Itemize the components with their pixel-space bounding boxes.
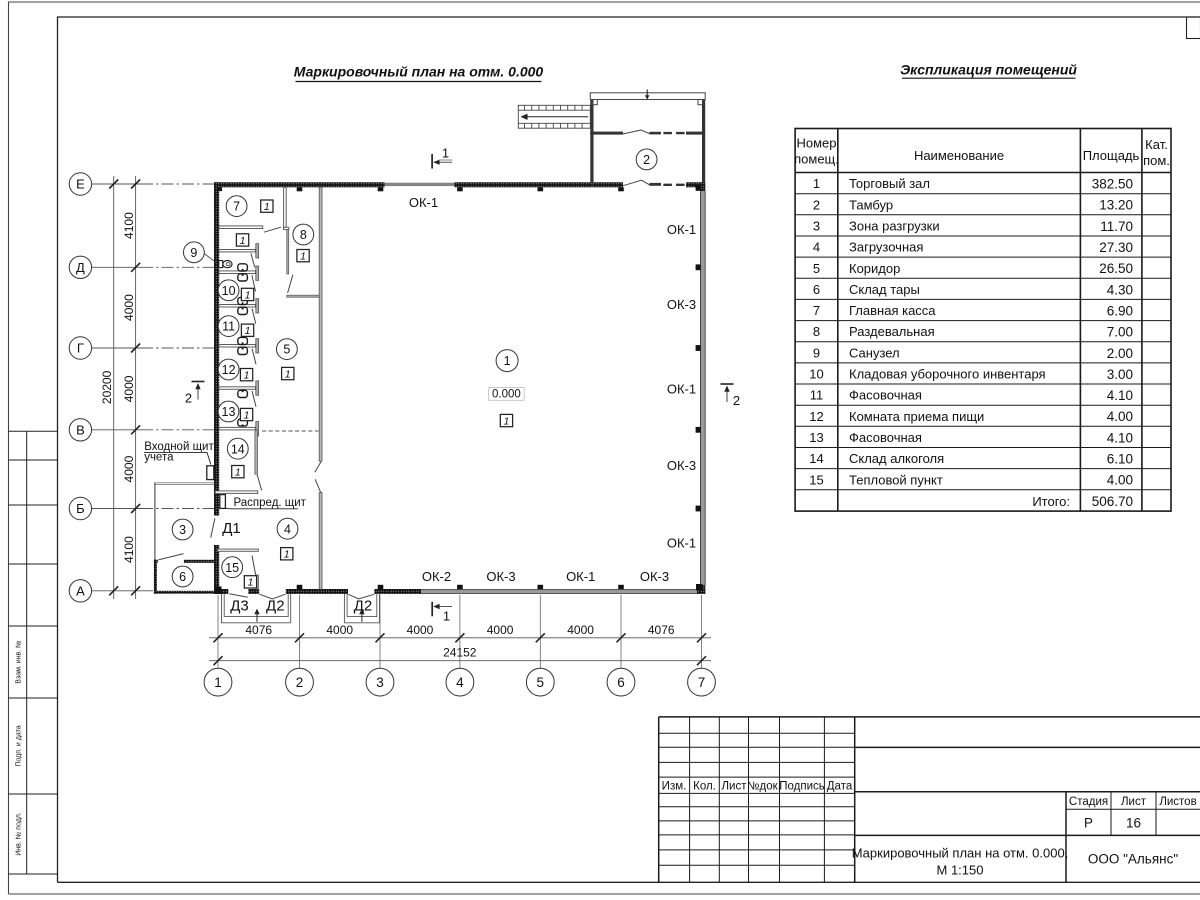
svg-text:Д2: Д2 <box>354 598 373 615</box>
svg-text:1: 1 <box>300 251 306 263</box>
svg-text:ОК-1: ОК-1 <box>667 222 696 237</box>
svg-text:Е: Е <box>76 177 85 192</box>
svg-text:1: 1 <box>503 415 509 427</box>
svg-text:Комната приема пищи: Комната приема пищи <box>849 409 984 424</box>
svg-text:3.00: 3.00 <box>1107 367 1133 382</box>
svg-text:Итого:: Итого: <box>1032 494 1070 509</box>
svg-text:4.00: 4.00 <box>1107 409 1133 424</box>
svg-text:10: 10 <box>222 284 236 298</box>
svg-text:14: 14 <box>809 451 823 466</box>
svg-text:ОК-3: ОК-3 <box>667 297 696 312</box>
svg-text:Р: Р <box>1084 816 1093 831</box>
svg-text:Тамбур: Тамбур <box>849 197 893 212</box>
svg-text:4000: 4000 <box>122 294 136 321</box>
svg-text:Инв. № подл.: Инв. № подл. <box>16 812 23 856</box>
svg-text:11: 11 <box>810 388 824 403</box>
svg-text:Загрузочная: Загрузочная <box>849 240 923 255</box>
svg-text:ОК-1: ОК-1 <box>667 382 696 397</box>
svg-text:Главная касса: Главная касса <box>849 303 936 318</box>
svg-text:2: 2 <box>813 197 820 212</box>
svg-text:В: В <box>76 422 85 437</box>
svg-text:12: 12 <box>809 409 823 424</box>
svg-text:Маркировочный план на отм. 0.0: Маркировочный план на отм. 0.000, <box>852 846 1069 861</box>
svg-text:11.70: 11.70 <box>1100 219 1133 234</box>
svg-text:Кат.: Кат. <box>1145 137 1168 152</box>
svg-text:2: 2 <box>185 391 192 406</box>
svg-text:20200: 20200 <box>100 370 114 404</box>
svg-text:27.30: 27.30 <box>1099 240 1133 255</box>
svg-text:4: 4 <box>456 675 464 690</box>
svg-text:Площадь: Площадь <box>1083 148 1140 163</box>
svg-text:7: 7 <box>813 303 820 318</box>
svg-text:Взам. инв. №: Взам. инв. № <box>16 640 23 683</box>
svg-text:1: 1 <box>284 549 290 561</box>
svg-text:Фасовочная: Фасовочная <box>849 430 922 445</box>
svg-text:16: 16 <box>1126 816 1141 831</box>
svg-text:Экспликация помещений: Экспликация помещений <box>900 62 1077 78</box>
svg-text:9: 9 <box>813 345 820 360</box>
svg-text:1: 1 <box>245 325 251 337</box>
svg-text:Стадия: Стадия <box>1069 796 1108 808</box>
svg-text:Подпись: Подпись <box>779 781 825 793</box>
svg-text:2: 2 <box>733 393 740 408</box>
svg-text:1: 1 <box>244 409 250 421</box>
svg-text:14: 14 <box>231 442 245 456</box>
svg-text:506.70: 506.70 <box>1092 494 1133 509</box>
svg-text:Торговый зал: Торговый зал <box>849 176 930 191</box>
svg-text:2: 2 <box>296 675 304 690</box>
svg-text:Коридор: Коридор <box>849 261 900 276</box>
svg-text:8: 8 <box>813 324 820 339</box>
svg-text:Тепловой пункт: Тепловой пункт <box>849 472 943 487</box>
svg-text:1: 1 <box>285 368 291 380</box>
svg-text:7: 7 <box>233 200 240 214</box>
svg-text:4100: 4100 <box>122 212 136 239</box>
svg-text:Кол.: Кол. <box>693 781 716 793</box>
svg-text:26.50: 26.50 <box>1099 261 1133 276</box>
svg-text:4.10: 4.10 <box>1107 430 1133 445</box>
svg-text:1: 1 <box>442 145 449 160</box>
svg-text:15: 15 <box>225 561 239 575</box>
svg-text:13: 13 <box>809 430 823 445</box>
svg-text:7: 7 <box>698 675 706 690</box>
svg-text:13: 13 <box>222 405 236 419</box>
svg-text:Кладовая уборочного инвентаря: Кладовая уборочного инвентаря <box>849 367 1046 382</box>
svg-text:4076: 4076 <box>245 623 272 637</box>
svg-text:1: 1 <box>443 609 450 624</box>
svg-text:Г: Г <box>77 341 84 356</box>
svg-text:ОК-1: ОК-1 <box>409 195 438 210</box>
svg-text:4076: 4076 <box>648 623 675 637</box>
svg-text:пом.: пом. <box>1143 153 1170 168</box>
svg-text:2.00: 2.00 <box>1107 346 1133 361</box>
svg-text:Д3: Д3 <box>230 598 249 615</box>
svg-text:4: 4 <box>813 240 820 255</box>
svg-text:1: 1 <box>264 201 270 213</box>
svg-text:Дата: Дата <box>827 781 853 793</box>
svg-text:6: 6 <box>179 570 186 584</box>
svg-text:Склад алкоголя: Склад алкоголя <box>849 451 944 466</box>
svg-text:ОК-2: ОК-2 <box>422 569 451 584</box>
svg-text:6: 6 <box>617 675 625 690</box>
svg-text:1: 1 <box>245 289 251 301</box>
svg-text:Фасовочная: Фасовочная <box>849 388 922 403</box>
svg-text:6.10: 6.10 <box>1107 452 1133 467</box>
svg-text:ООО "Альянс": ООО "Альянс" <box>1088 852 1178 867</box>
svg-text:ОК-1: ОК-1 <box>566 569 595 584</box>
svg-text:11: 11 <box>222 320 235 334</box>
svg-text:1: 1 <box>214 675 222 690</box>
svg-text:3: 3 <box>179 523 186 537</box>
svg-text:1: 1 <box>240 235 246 247</box>
svg-text:6: 6 <box>813 282 820 297</box>
svg-text:5: 5 <box>537 675 545 690</box>
svg-text:9: 9 <box>190 246 197 260</box>
svg-text:ОК-3: ОК-3 <box>640 569 669 584</box>
svg-text:Наименование: Наименование <box>914 148 1004 163</box>
svg-text:Раздевальная: Раздевальная <box>849 324 935 339</box>
svg-text:Д: Д <box>76 260 85 275</box>
svg-text:4000: 4000 <box>122 375 136 402</box>
svg-text:4: 4 <box>284 522 291 536</box>
svg-text:4.30: 4.30 <box>1107 282 1133 297</box>
svg-text:Д1: Д1 <box>222 520 241 537</box>
svg-text:№док.: №док. <box>747 781 781 793</box>
svg-text:4.00: 4.00 <box>1107 473 1133 488</box>
svg-text:10: 10 <box>809 367 823 382</box>
svg-text:Склад тары: Склад тары <box>849 282 920 297</box>
svg-text:Д2: Д2 <box>266 598 285 615</box>
svg-text:8: 8 <box>300 228 307 242</box>
svg-text:0.000: 0.000 <box>492 389 521 401</box>
svg-text:1: 1 <box>247 577 253 589</box>
svg-text:ОК-1: ОК-1 <box>667 536 696 551</box>
svg-text:24152: 24152 <box>443 646 477 660</box>
svg-text:4000: 4000 <box>326 623 353 637</box>
svg-text:3: 3 <box>813 219 820 234</box>
svg-text:М 1:150: М 1:150 <box>937 863 984 878</box>
svg-text:помещ.: помещ. <box>794 152 839 167</box>
svg-text:1: 1 <box>235 467 241 479</box>
svg-text:1: 1 <box>504 354 511 368</box>
svg-text:Номер: Номер <box>796 136 836 151</box>
svg-text:4000: 4000 <box>567 623 594 637</box>
svg-text:12: 12 <box>222 363 236 377</box>
svg-text:382.50: 382.50 <box>1092 177 1133 192</box>
svg-text:Б: Б <box>76 501 85 516</box>
svg-text:ОК-3: ОК-3 <box>486 569 515 584</box>
svg-text:4000: 4000 <box>407 623 434 637</box>
svg-text:учета: учета <box>144 451 174 463</box>
svg-text:6.90: 6.90 <box>1107 304 1133 319</box>
svg-text:1: 1 <box>813 176 820 191</box>
svg-text:5: 5 <box>813 261 820 276</box>
svg-text:А: А <box>76 583 85 598</box>
svg-text:5: 5 <box>283 343 290 357</box>
svg-text:4100: 4100 <box>122 536 136 563</box>
svg-text:Листов: Листов <box>1159 796 1196 808</box>
svg-text:13.20: 13.20 <box>1099 198 1133 213</box>
svg-text:1: 1 <box>244 370 250 382</box>
svg-text:Подп. и дата: Подп. и дата <box>16 725 23 766</box>
svg-text:Лист: Лист <box>1121 796 1147 808</box>
svg-text:Лист: Лист <box>722 781 748 793</box>
svg-text:4000: 4000 <box>487 623 514 637</box>
svg-text:Зона разгрузки: Зона разгрузки <box>849 219 940 234</box>
svg-text:7.00: 7.00 <box>1107 325 1133 340</box>
svg-text:4.10: 4.10 <box>1107 388 1133 403</box>
svg-text:4000: 4000 <box>122 455 136 482</box>
svg-text:ОК-3: ОК-3 <box>667 458 696 473</box>
svg-text:Санузел: Санузел <box>849 345 900 360</box>
svg-text:2: 2 <box>643 153 650 167</box>
svg-text:Маркировочный план на отм. 0.0: Маркировочный план на отм. 0.000 <box>294 64 544 80</box>
svg-text:15: 15 <box>809 472 823 487</box>
svg-text:3: 3 <box>376 675 384 690</box>
svg-text:Распред. щит: Распред. щит <box>234 497 307 509</box>
svg-text:Изм.: Изм. <box>662 781 687 793</box>
